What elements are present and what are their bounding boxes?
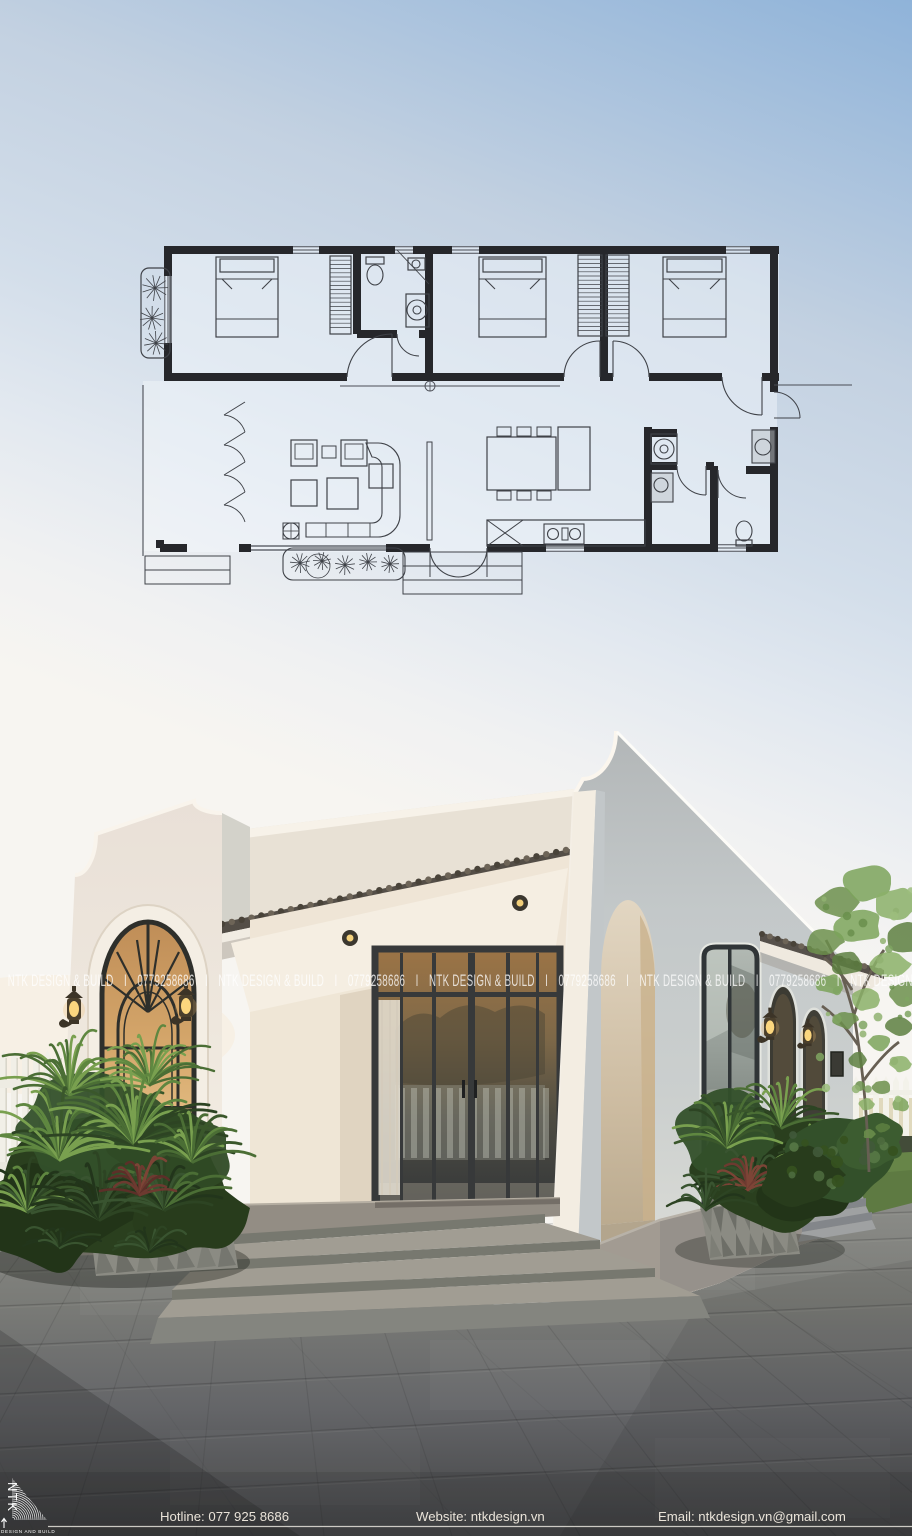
svg-text:NTK DESIGN & BUILD I 0779258: NTK DESIGN & BUILD I 0779258686 I NTK DE…: [0, 971, 912, 989]
svg-text:Website: ntkdesign.vn: Website: ntkdesign.vn: [416, 1509, 545, 1524]
svg-text:Hotline: 077 925 8686: Hotline: 077 925 8686: [160, 1509, 289, 1524]
svg-text:Email: ntkdesign.vn@gmail.com: Email: ntkdesign.vn@gmail.com: [658, 1509, 846, 1524]
svg-text:NTK: NTK: [5, 1482, 20, 1513]
svg-text:DESIGN AND BUILD: DESIGN AND BUILD: [1, 1529, 55, 1534]
